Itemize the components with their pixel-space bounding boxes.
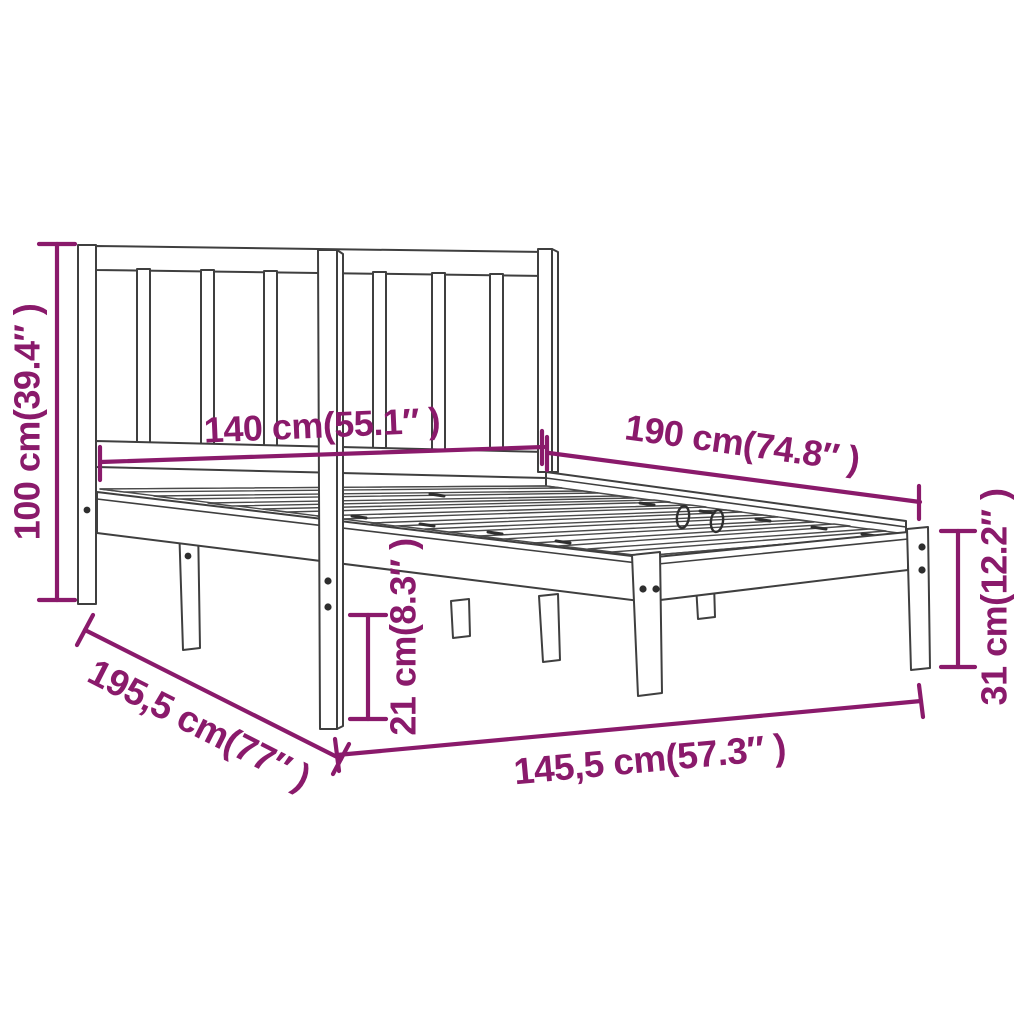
headboard-center-post (318, 250, 343, 729)
headboard-left-post (78, 245, 96, 604)
bed-base (97, 472, 930, 696)
dimension-total-length: 195,5 cm(77″ ) (77, 615, 349, 798)
mattress-width-label: 140 cm(55.1″ ) (203, 399, 441, 450)
headboard-height-label: 100 cm(39.4″ ) (7, 304, 48, 540)
under-bed-clearance-label: 21 cm(8.3″ ) (383, 538, 424, 735)
diagram-canvas: 100 cm(39.4″ ) 140 cm(55.1″ ) 190 cm(74.… (0, 0, 1024, 1024)
dimension-side-rail-height: 31 cm(12.2″ ) (941, 489, 1015, 706)
dimension-under-bed-clearance: 21 cm(8.3″ ) (350, 538, 424, 735)
dimension-headboard-height: 100 cm(39.4″ ) (7, 244, 75, 600)
total-length-label: 195,5 cm(77″ ) (82, 651, 317, 798)
near-foot-leg (632, 552, 662, 696)
side-rail-height-label: 31 cm(12.2″ ) (974, 489, 1015, 706)
bed-frame-dimension-diagram: 100 cm(39.4″ ) 140 cm(55.1″ ) 190 cm(74.… (0, 0, 1024, 1024)
far-foot-leg (907, 527, 930, 670)
